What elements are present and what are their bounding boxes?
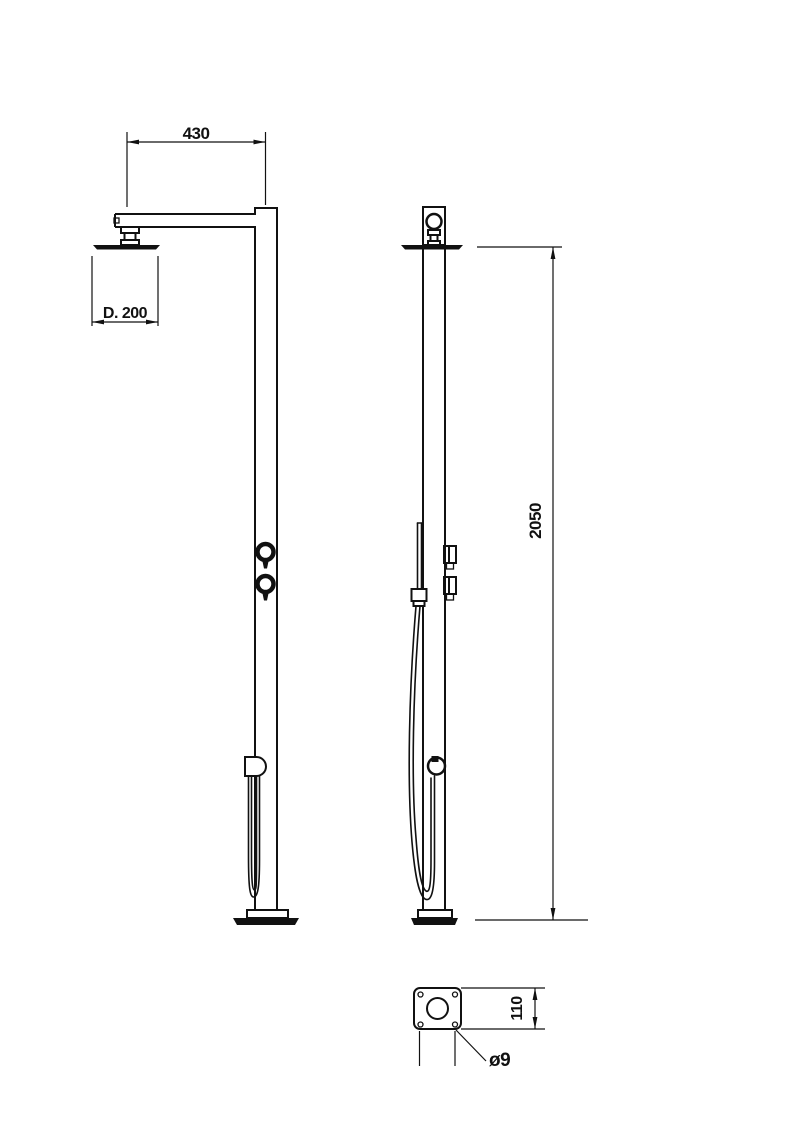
overhead-shower-front — [93, 227, 160, 250]
dimension-label-2050: 2050 — [526, 503, 545, 539]
base-front — [233, 910, 299, 925]
dimension-head-diameter: D. 200 — [92, 256, 158, 326]
ball-joint — [427, 214, 442, 229]
lower-knob — [258, 576, 274, 592]
lower-knob-lever — [263, 594, 269, 601]
front-view: 430 D. 200 — [92, 124, 299, 925]
base-plate — [233, 918, 299, 925]
dimension-label-430: 430 — [183, 124, 210, 143]
anchor-hole — [418, 992, 423, 997]
dimension-anchor-holes: ø9 — [420, 1030, 511, 1071]
dimension-base-size: 110 — [461, 988, 545, 1029]
base-plate — [411, 918, 458, 925]
outlet-clamp — [432, 756, 439, 762]
shower-column-drawing: 430 D. 200 — [0, 0, 800, 1133]
head-joint-waist — [125, 233, 136, 240]
dimension-arm-reach: 430 — [127, 124, 266, 207]
arrowhead-right — [146, 320, 158, 325]
wand-holder — [412, 589, 427, 601]
side-view: 2050 — [401, 207, 588, 925]
column-bore — [427, 998, 448, 1019]
anchor-hole — [453, 1022, 458, 1027]
arrowhead-up — [533, 988, 538, 1000]
arrowhead-down — [533, 1017, 538, 1029]
base-plan-view: 110 ø9 — [414, 988, 545, 1071]
overhead-shower-side — [401, 207, 463, 250]
base-flange — [418, 910, 452, 918]
wand-holder-step — [414, 601, 425, 606]
upper-knob-lever — [263, 562, 269, 569]
dimension-label-110: 110 — [509, 996, 526, 1021]
arrowhead-left — [127, 140, 139, 145]
arm-bottom-and-column-left-edge — [115, 227, 255, 910]
dimension-label-d200: D. 200 — [103, 305, 148, 322]
arrowhead-right — [254, 140, 266, 145]
dimension-column-height: 2050 — [475, 247, 588, 920]
dimension-label-hole-diameter: ø9 — [489, 1050, 510, 1071]
shower-head-edge — [401, 245, 463, 250]
drawing-sheet: 430 D. 200 — [0, 0, 800, 1133]
arrowhead-down — [551, 908, 556, 920]
leader-line — [456, 1030, 486, 1061]
arrowhead-up — [551, 247, 556, 259]
hose-outlet-bracket — [245, 757, 266, 776]
control-knobs-front — [258, 544, 274, 601]
head-joint-lower — [428, 241, 440, 245]
anchor-hole — [453, 992, 458, 997]
upper-knob — [258, 544, 274, 560]
base-side — [411, 910, 458, 925]
handshower-side — [409, 523, 445, 900]
shower-head-disk — [93, 245, 160, 250]
base-flange — [247, 910, 288, 918]
head-joint-lower — [121, 240, 139, 245]
anchor-hole — [418, 1022, 423, 1027]
